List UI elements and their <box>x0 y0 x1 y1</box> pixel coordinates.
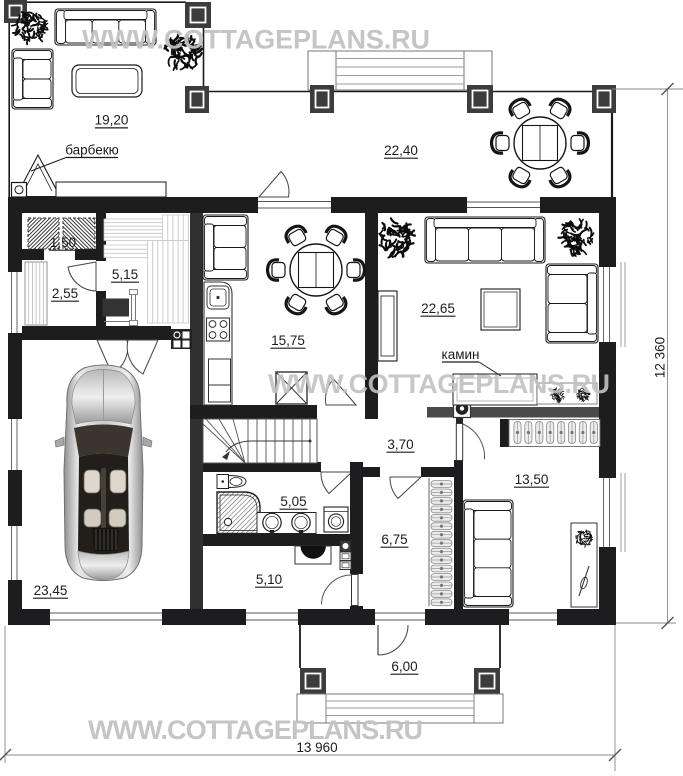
svg-text:камин: камин <box>442 347 480 362</box>
svg-text:6,00: 6,00 <box>391 659 417 674</box>
svg-text:15,75: 15,75 <box>271 333 305 348</box>
svg-text:5,05: 5,05 <box>280 494 306 509</box>
svg-text:6,75: 6,75 <box>381 532 407 547</box>
svg-text:барбекю: барбекю <box>65 143 119 158</box>
svg-text:19,20: 19,20 <box>95 113 129 128</box>
svg-text:13,50: 13,50 <box>515 472 549 487</box>
svg-text:WWW.COTTAGEPLANS.RU: WWW.COTTAGEPLANS.RU <box>88 715 423 745</box>
svg-text:5,15: 5,15 <box>112 267 138 282</box>
svg-text:22,40: 22,40 <box>384 143 418 158</box>
svg-text:12 360: 12 360 <box>653 337 668 378</box>
svg-text:3,70: 3,70 <box>387 437 413 452</box>
svg-text:1,50: 1,50 <box>50 235 76 250</box>
svg-text:22,65: 22,65 <box>421 301 455 316</box>
svg-text:2,55: 2,55 <box>52 286 78 301</box>
svg-text:WWW.COTTAGEPLANS.RU: WWW.COTTAGEPLANS.RU <box>82 25 430 55</box>
svg-text:WWW.COTTAGEPLANS.RU: WWW.COTTAGEPLANS.RU <box>268 369 610 399</box>
svg-text:5,10: 5,10 <box>256 572 282 587</box>
svg-text:23,45: 23,45 <box>34 583 68 598</box>
